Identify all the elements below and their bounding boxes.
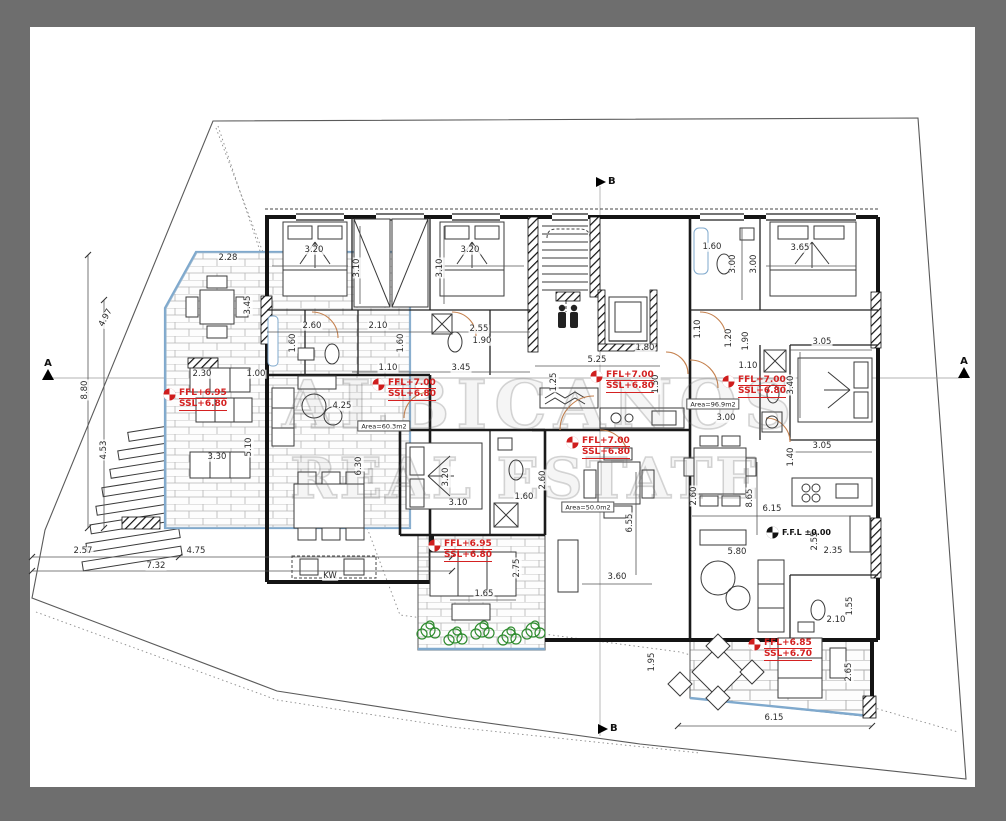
lobby-mat [540,388,598,408]
floor-plan-drawing: .w{stroke:#141414;stroke-width:4;fill:no… [0,0,1006,821]
bed [770,222,856,296]
kitchen-unit2 [600,408,684,428]
bed [440,222,504,296]
kitchen-unit3 [792,478,872,552]
bed [283,222,347,296]
kitchen-unit1 [292,556,376,578]
dining-table [684,436,756,506]
cabinet [558,540,578,592]
bed [798,358,872,422]
elevator [609,297,647,341]
screenshot-frame: .w{stroke:#141414;stroke-width:4;fill:no… [0,0,1006,821]
living-room-unit3 [700,530,784,632]
bed [406,443,482,509]
stair-figure-icon [556,292,580,328]
dining-table [584,448,654,518]
dining-table [294,472,364,540]
